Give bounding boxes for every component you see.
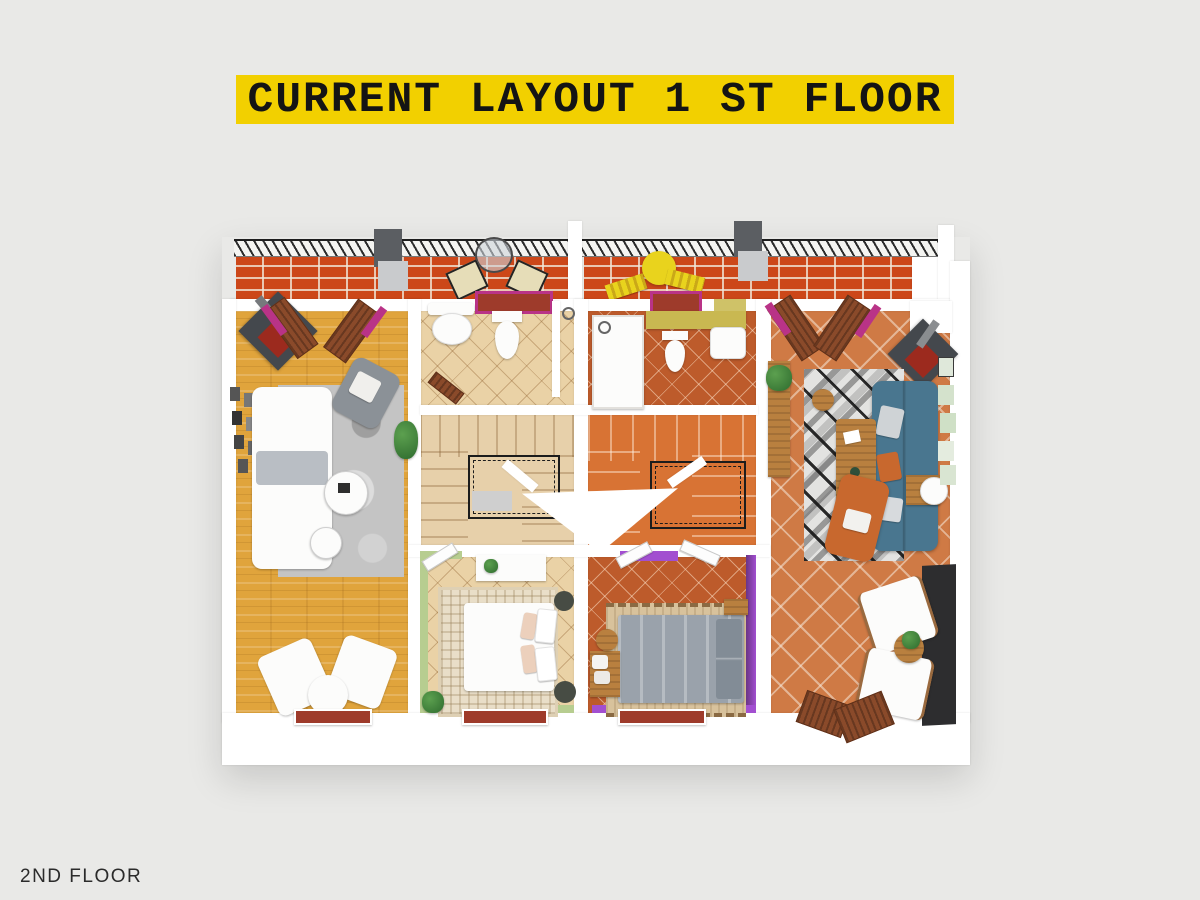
wall-bath-stairs [420, 405, 758, 415]
bench-pillow-1 [592, 655, 608, 669]
bench-pillow-2 [594, 671, 610, 684]
title-banner: CURRENT LAYOUT 1 ST FLOOR [236, 75, 954, 124]
second-floor-label: 2ND FLOOR [20, 866, 142, 888]
dark-floor-runner [922, 564, 956, 726]
side-table-round-wood [812, 389, 834, 411]
stool-white-round [920, 477, 948, 505]
window-bedroom-left [462, 709, 548, 725]
picture-frames-right-wall [938, 357, 954, 377]
coffee-table-deco [338, 483, 350, 493]
console-plant-right-room [766, 365, 792, 391]
bedroom-left-plant [422, 691, 444, 713]
window-bedroom-right [618, 709, 706, 725]
floor-plan [222, 215, 970, 765]
coffee-table-round-large [324, 471, 368, 515]
bed-white-pillow-1 [534, 608, 557, 644]
sink-left-basin [432, 313, 472, 345]
side-table-wood-round [596, 629, 618, 651]
nightstand-round-top [554, 591, 574, 611]
balcony-table [475, 237, 513, 273]
second-floor-text: 2ND FLOOR [20, 866, 142, 887]
plant-between-armchairs [902, 631, 920, 649]
west-wall [222, 299, 236, 723]
page-title: CURRENT LAYOUT 1 ST FLOOR [247, 75, 942, 124]
bed-white-pillow-2 [534, 646, 557, 682]
balcony-railing [234, 239, 950, 257]
stair-left-landing [472, 491, 512, 511]
sink-right [710, 327, 746, 359]
page: { "banner": { "title": "CURRENT LAYOUT 1… [0, 0, 1200, 900]
chimney-right-body [738, 251, 768, 281]
shower-head-icon-right [598, 321, 611, 334]
window-living-left [294, 709, 372, 725]
shower-head-icon-left [562, 307, 575, 320]
coffee-table-round-small [310, 527, 342, 559]
nightstand-round-bottom [554, 681, 576, 703]
sofa-white-throw [256, 451, 328, 485]
picture-frames-left-wall [230, 387, 240, 401]
console-plant [484, 559, 498, 573]
sofa-blue-pillow-orange [876, 451, 903, 482]
plant-left-room [394, 421, 418, 459]
nightstand-wood [724, 599, 748, 615]
chimney-left-body [378, 261, 408, 291]
green-wall-west [420, 557, 428, 713]
bed-gray-pillows [716, 619, 742, 699]
purple-wall-east [746, 555, 756, 713]
bidet-tank [662, 331, 688, 340]
bathroom-right-counter-corner [714, 299, 746, 311]
balcony-divider-wall [568, 221, 582, 303]
shower-left-partition [552, 301, 560, 397]
stair-left-treads-side [420, 451, 468, 547]
